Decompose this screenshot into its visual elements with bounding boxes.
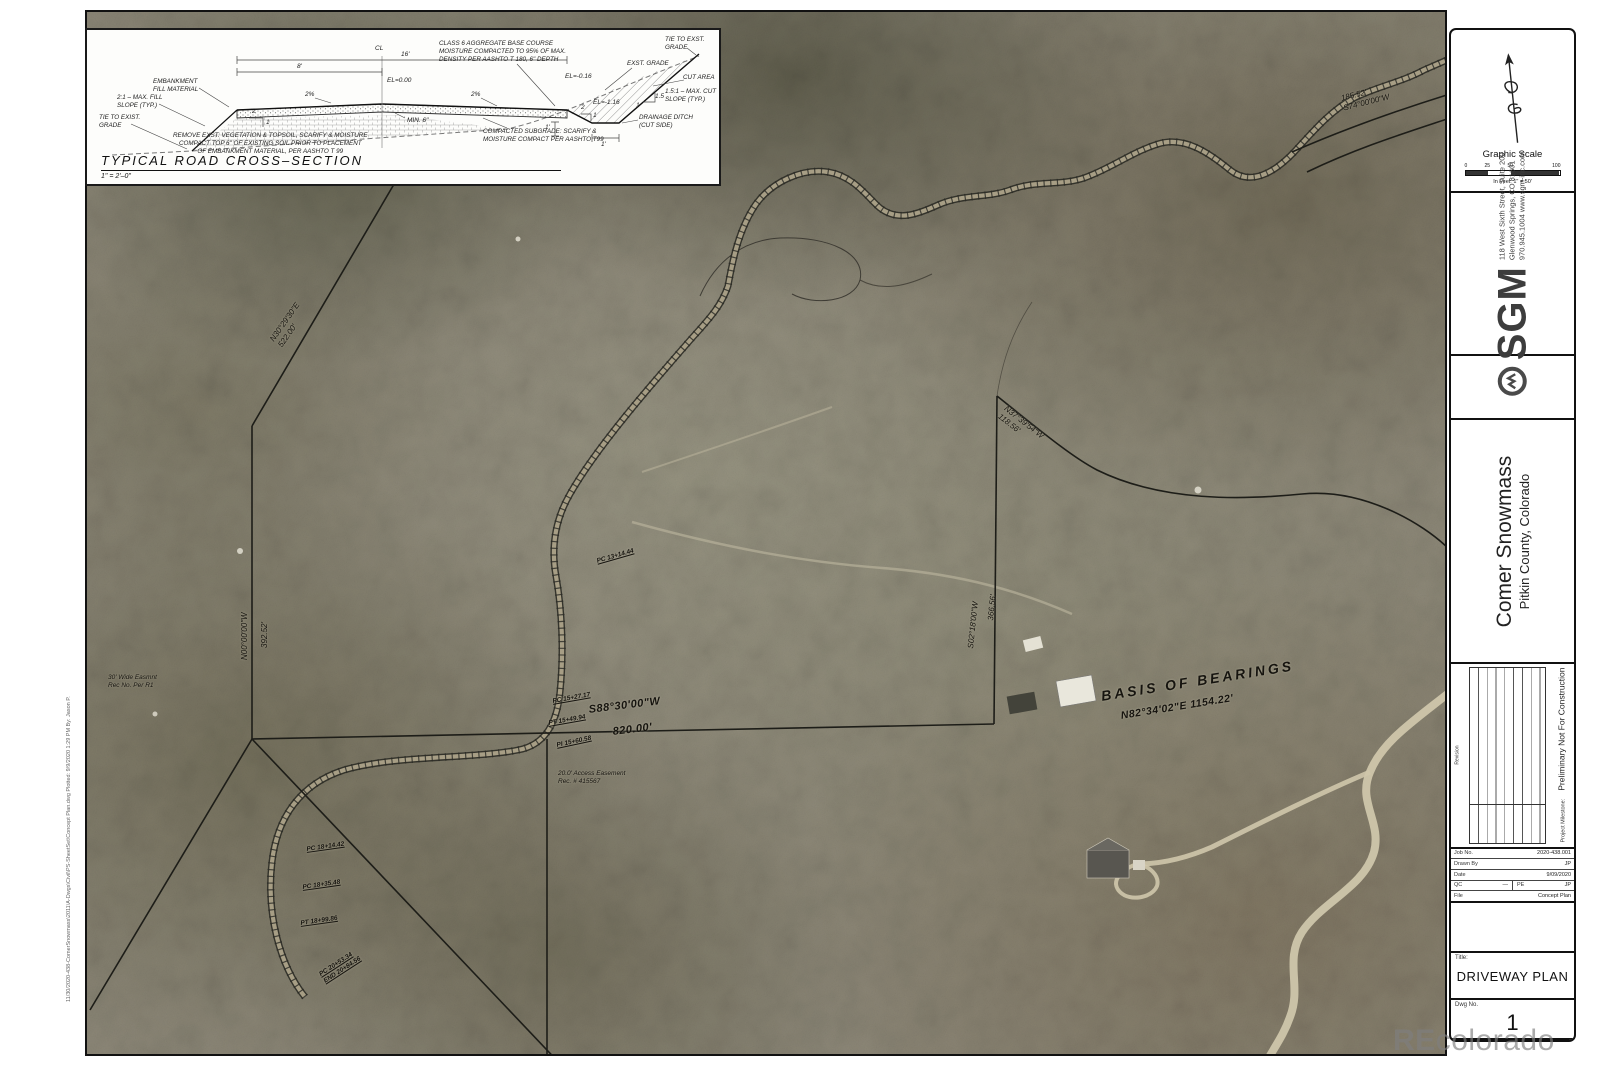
plan-sheet: BASIS OF BEARINGS N82°34'02"E 1154.22' S… bbox=[0, 0, 1600, 1066]
cross-section-title: TYPICAL ROAD CROSS–SECTION bbox=[101, 154, 561, 171]
plot-stamp: 11/30/2020-438-ComerSnowmass\2011\A-Dwgs… bbox=[66, 602, 72, 1002]
note-subgrade: COMPACTED SUBGRADE: SCARIFY & MOISTURE C… bbox=[483, 128, 604, 144]
note-exst-grade: EXST. GRADE bbox=[627, 60, 669, 68]
milestone-text: Preliminary Not For Construction bbox=[1556, 668, 1566, 791]
firm-address-line1: 118 West Sixth Street, Suite 200 bbox=[1497, 151, 1507, 259]
revision-side-labels: Revision bbox=[1451, 664, 1465, 846]
ratio-2a: 2 bbox=[252, 109, 256, 116]
recolorado-watermark: REcolorado bbox=[1393, 1024, 1555, 1058]
qc-label: QC bbox=[1454, 882, 1462, 888]
file-label: File bbox=[1454, 893, 1463, 899]
milestone-label: Project Milestone: bbox=[1560, 799, 1566, 843]
firm-address-line2: Glenwood Springs, CO 81601 bbox=[1507, 151, 1517, 259]
note-tie-left: TIE TO EXIST. GRADE bbox=[99, 114, 140, 130]
ratio-1c: 1 bbox=[636, 103, 640, 110]
scale-tick: 25 bbox=[1485, 163, 1491, 169]
note-cut-slope: 1.5:1 – MAX. CUT SLOPE (TYP.) bbox=[665, 88, 716, 104]
dim-el016: EL=-0.16 bbox=[565, 74, 592, 81]
pe-label: PE bbox=[1517, 882, 1524, 888]
scale-tick: 0 bbox=[1465, 163, 1468, 169]
project-section: Comer Snowmass Pitkin County, Colorado bbox=[1451, 420, 1574, 664]
ratio-15: 1.5 bbox=[655, 94, 664, 101]
cross-section-panel: EMBANKMENT FILL MATERIAL 2:1 – MAX. FILL… bbox=[85, 28, 721, 186]
stamp-box bbox=[1451, 903, 1574, 953]
dim-8ft: 8' bbox=[297, 64, 302, 71]
dim-16ft: 16' bbox=[401, 52, 409, 59]
dim-2pct-right: 2% bbox=[471, 92, 480, 99]
note-fill-slope: 2:1 – MAX. FILL SLOPE (TYP.) bbox=[117, 94, 163, 110]
ratio-2b: 2 bbox=[581, 105, 585, 112]
watermark-re: RE bbox=[1393, 1024, 1436, 1057]
pe-value: JP bbox=[1565, 882, 1571, 888]
scale-tick: 100 bbox=[1552, 163, 1560, 169]
revision-grid bbox=[1469, 667, 1546, 843]
dwg-no-label: Dwg No. bbox=[1455, 1002, 1570, 1008]
title-block: Graphic Scale 0 25 50 100 In Feet: 1" = … bbox=[1449, 28, 1576, 1042]
project-location: Pitkin County, Colorado bbox=[1517, 455, 1532, 627]
date-row: Date 9/09/2020 bbox=[1451, 870, 1574, 881]
revision-section: Revision Project Milestone: Preliminary … bbox=[1451, 664, 1574, 848]
firm-address: 118 West Sixth Street, Suite 200 Glenwoo… bbox=[1497, 151, 1527, 259]
milestone-side: Project Milestone: Preliminary Not For C… bbox=[1548, 664, 1574, 846]
ratio-1a: 1 bbox=[266, 120, 270, 127]
job-no-label: Job No. bbox=[1454, 850, 1473, 856]
sheet-title: DRIVEWAY PLAN bbox=[1455, 969, 1570, 984]
north-arrow-icon bbox=[1493, 53, 1533, 145]
firm-section: SGM 118 West Sixth Street, Suite 200 Gle… bbox=[1451, 193, 1574, 356]
sheet-title-section: Title: DRIVEWAY PLAN bbox=[1451, 953, 1574, 1000]
job-info-section: Job No. 2020-438.001 Drawn By JP Date 9/… bbox=[1451, 849, 1574, 903]
file-row: File Concept Plan bbox=[1451, 891, 1574, 901]
job-no-row: Job No. 2020-438.001 bbox=[1451, 849, 1574, 860]
dim-cl: CL bbox=[375, 46, 383, 53]
blank-section bbox=[1451, 356, 1574, 420]
note-embankment: EMBANKMENT FILL MATERIAL bbox=[153, 78, 198, 94]
dim-1ft-h: 1' bbox=[601, 142, 606, 149]
note-class6: CLASS 6 AGGREGATE BASE COURSE MOISTURE C… bbox=[439, 40, 566, 65]
dim-el116: EL=-1.16 bbox=[593, 100, 620, 107]
firm-name: SGM bbox=[1495, 266, 1531, 360]
note-cut-area: CUT AREA bbox=[683, 74, 715, 82]
project-name: Comer Snowmass bbox=[1493, 455, 1517, 627]
job-no-value: 2020-438.001 bbox=[1537, 850, 1571, 856]
firm-address-line3: 970.945.1004 www.sgm-inc.com bbox=[1518, 151, 1528, 259]
drawn-by-value: JP bbox=[1565, 861, 1571, 867]
date-label: Date bbox=[1454, 872, 1466, 878]
cross-section-scale: 1" = 2'–0" bbox=[101, 173, 131, 180]
date-value: 9/09/2020 bbox=[1547, 872, 1571, 878]
note-ditch: DRAINAGE DITCH (CUT SIDE) bbox=[639, 114, 693, 130]
dim-el0: EL=0.00 bbox=[387, 78, 411, 85]
ratio-1b: 1 bbox=[593, 113, 597, 120]
qc-value: — bbox=[1502, 882, 1508, 888]
dim-2pct-left: 2% bbox=[305, 92, 314, 99]
drawn-by-row: Drawn By JP bbox=[1451, 859, 1574, 870]
note-tie-right: TIE TO EXST. GRADE bbox=[665, 36, 705, 52]
watermark-colorado: colorado bbox=[1436, 1024, 1555, 1057]
sheet-title-label: Title: bbox=[1455, 955, 1570, 961]
file-value: Concept Plan bbox=[1538, 893, 1571, 899]
dim-min6: MIN. 6" bbox=[407, 118, 428, 125]
drawn-by-label: Drawn By bbox=[1454, 861, 1478, 867]
qc-pe-row: QC — PE JP bbox=[1451, 881, 1574, 892]
revision-label: Revision bbox=[1455, 746, 1461, 765]
dim-1ft-v: 1' bbox=[545, 125, 550, 132]
